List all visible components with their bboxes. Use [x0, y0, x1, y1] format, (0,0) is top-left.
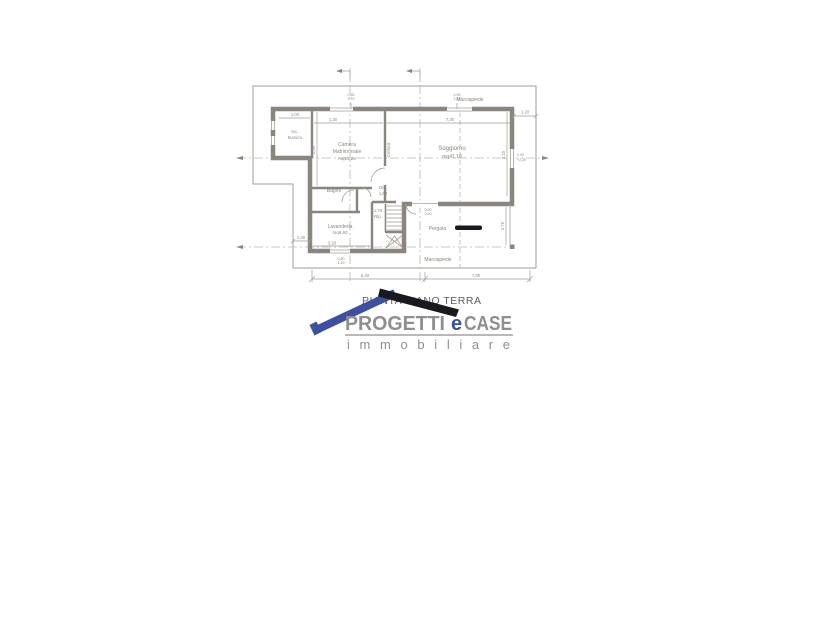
room-labels: loc. tecnico Camera Matrimoniale mq13,28… — [288, 129, 466, 235]
dim-soggiorno-top: 7,30 — [446, 117, 455, 122]
dim-camera-top: 1,30 — [329, 117, 338, 122]
room-area-lavanderia: mq6,60 — [332, 230, 348, 235]
dim-lavanderia-bottom: 3,20 — [328, 241, 337, 246]
dim-bottom-right: 7,80 — [472, 273, 481, 278]
svg-text:1,70: 1,70 — [374, 208, 383, 213]
room-area-camera: mq13,28 — [338, 156, 356, 161]
room-area-soggiorno: mq41,10 — [442, 154, 462, 160]
svg-text:+2,20: +2,20 — [517, 158, 526, 162]
logo-name-part1: PROGETTI — [345, 313, 445, 335]
dim-camera-left: 4,50 — [311, 145, 316, 154]
dim-right-window: 1,00 — [517, 153, 524, 157]
sidewalk-label-bottom: Marciapiede — [424, 257, 451, 263]
pergola-redaction-blob — [455, 226, 482, 231]
room-label-pergola: Pergola — [429, 226, 446, 232]
agency-logo: PROGETTI e CASE immobiliare — [310, 289, 514, 353]
floor-plan-document: Marciapiede Marciapiede loc. tecnico Cam… — [0, 0, 840, 630]
room-label-cottura: Cottura — [386, 142, 391, 157]
dim-loc-top: 1,00 — [291, 112, 300, 117]
floor-plan-drawing: Marciapiede Marciapiede loc. tecnico Cam… — [0, 0, 840, 630]
dim-soggiorno-right: 5,10 — [501, 150, 506, 159]
section-marker-square — [510, 245, 515, 250]
logo-name-accent: e — [451, 313, 462, 335]
svg-text:2,70: 2,70 — [348, 97, 355, 101]
room-label-camera: Camera — [338, 142, 356, 148]
svg-text:Matrimoniale: Matrimoniale — [333, 149, 362, 155]
dim-bottom-left: 5,40 — [361, 273, 370, 278]
svg-text:2,40: 2,40 — [425, 212, 432, 216]
svg-text:1,80: 1,80 — [379, 191, 388, 196]
dim-left: 1,30 — [297, 235, 306, 240]
logo-tagline: immobiliare — [347, 337, 510, 352]
staircase — [386, 206, 403, 248]
dim-top-right: 1,20 — [521, 110, 530, 115]
svg-text:2,70: 2,70 — [454, 97, 461, 101]
svg-text:1,20: 1,20 — [338, 261, 345, 265]
dimension-lines — [279, 103, 538, 282]
room-label-rip: Rip. — [374, 214, 382, 219]
dim-pergola-height: 1,75 — [500, 221, 505, 230]
room-label-soggiorno: Soggiorno — [438, 146, 466, 152]
svg-text:tecnico: tecnico — [288, 135, 303, 140]
room-label-dis: Dis. — [379, 185, 387, 190]
room-label-loc-tecnico: loc. — [291, 129, 298, 134]
logo-name-part2: CASE — [464, 313, 512, 335]
room-label-bagno: Bagno — [327, 188, 342, 194]
